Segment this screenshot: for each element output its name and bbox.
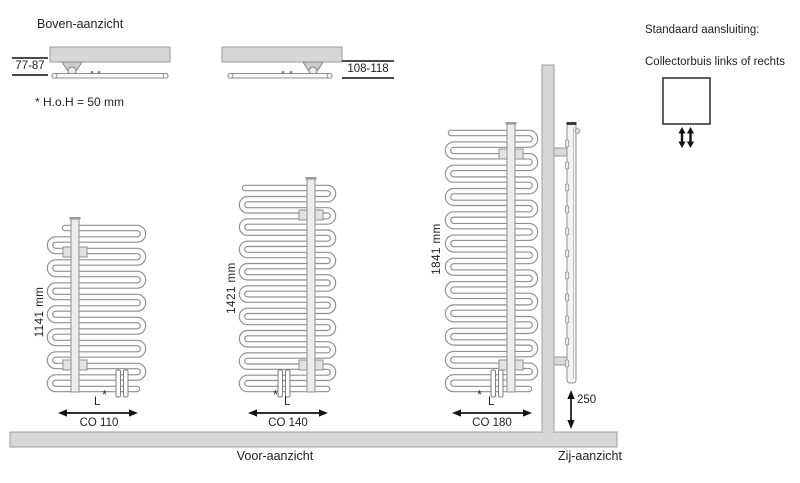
radiator1-width-label: L	[94, 396, 100, 409]
topview2-wall-distance: 108-118	[342, 60, 394, 79]
flow-arrows-icon	[678, 127, 694, 148]
floor-distance-arrow	[567, 390, 574, 429]
top-view-title: Boven-aanzicht	[37, 18, 123, 32]
radiator3-height-label: 1841 mm	[431, 214, 443, 284]
radiator2-height-label: 1421 mm	[226, 253, 238, 323]
connection-box	[663, 78, 710, 124]
radiator-co140-drawing	[242, 177, 333, 397]
width-dimension-arrows	[58, 409, 532, 416]
diagram-canvas	[0, 0, 800, 483]
radiator1-height-label: 1141 mm	[34, 277, 46, 347]
radiator-co180-drawing	[448, 122, 535, 397]
connection-subtitle: Collectorbuis links of rechts	[645, 56, 785, 69]
radiator1-model-label: CO 110	[59, 417, 139, 430]
radiator3-width-label: L	[488, 396, 494, 409]
radiator3-footnote-mark: *	[477, 388, 482, 402]
connection-title: Standaard aansluiting:	[645, 24, 759, 37]
radiator3-model-label: CO 180	[452, 417, 532, 430]
top-view-1-drawing	[50, 47, 170, 78]
radiator-dimension-diagram: Boven-aanzicht 77-87 108-118 * H.o.H = 5…	[0, 0, 800, 483]
top-view-2-drawing	[222, 47, 342, 78]
radiator2-footnote-mark: *	[273, 388, 278, 402]
radiator2-model-label: CO 140	[248, 417, 328, 430]
radiator2-width-label: L	[284, 396, 290, 409]
radiator1-footnote-mark: *	[102, 388, 107, 402]
radiator-co110-drawing	[50, 217, 143, 397]
front-view-title: Voor-aanzicht	[215, 450, 335, 464]
hoh-note: * H.o.H = 50 mm	[35, 96, 124, 109]
side-view-title: Zij-aanzicht	[540, 450, 640, 464]
side-floor-distance: 250	[577, 394, 596, 407]
topview1-wall-distance: 77-87	[12, 57, 48, 76]
side-view-drawing	[554, 122, 580, 383]
